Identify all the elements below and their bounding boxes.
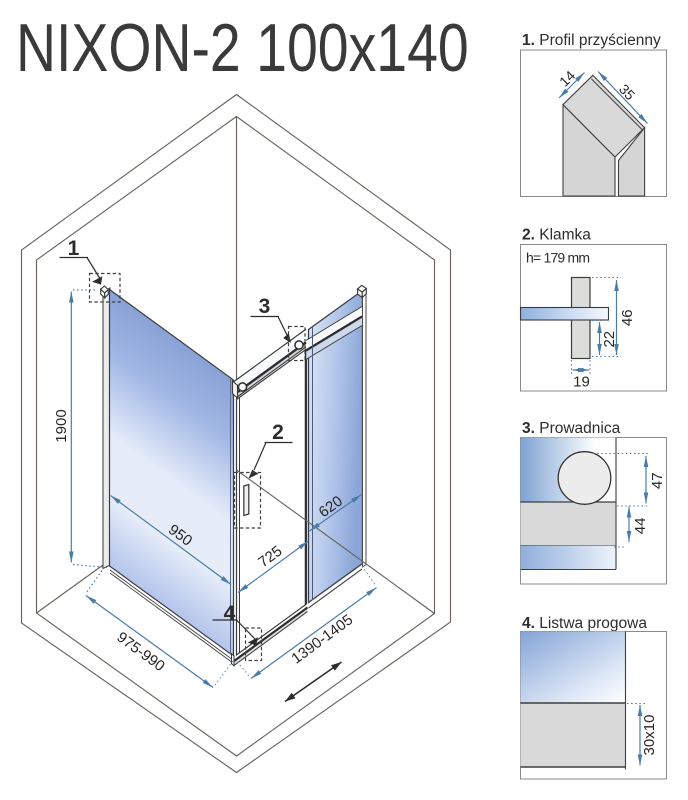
svg-text:2: 2	[272, 421, 284, 444]
svg-text:46: 46	[619, 309, 636, 326]
svg-text:3: 3	[259, 295, 271, 318]
svg-text:h= 179 mm: h= 179 mm	[526, 250, 589, 266]
svg-text:1. Profil przyścienny: 1. Profil przyścienny	[522, 32, 661, 49]
svg-text:2. Klamka: 2. Klamka	[522, 227, 591, 244]
svg-text:1900: 1900	[53, 409, 70, 442]
svg-text:19: 19	[573, 374, 590, 391]
svg-text:725: 725	[255, 543, 285, 572]
svg-text:1: 1	[68, 237, 80, 260]
svg-text:47: 47	[649, 472, 666, 489]
svg-text:4. Listwa progowa: 4. Listwa progowa	[522, 615, 647, 632]
svg-text:44: 44	[632, 518, 649, 535]
svg-text:NIXON-2 100x140: NIXON-2 100x140	[16, 11, 469, 87]
svg-text:3. Prowadnica: 3. Prowadnica	[522, 420, 621, 437]
svg-text:1390-1405: 1390-1405	[288, 611, 356, 667]
svg-text:22: 22	[601, 331, 618, 348]
svg-text:30x10: 30x10	[641, 715, 658, 756]
svg-text:4: 4	[224, 602, 236, 625]
